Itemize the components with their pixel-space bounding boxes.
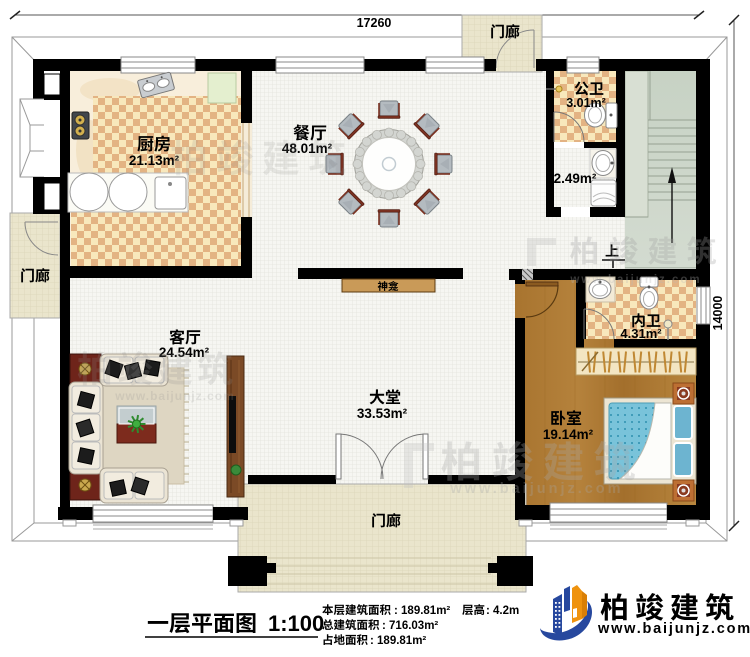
svg-text:www.baijunjz.com: www.baijunjz.com <box>449 481 623 497</box>
svg-text:3.01m²: 3.01m² <box>566 96 606 110</box>
svg-text:19.14m²: 19.14m² <box>543 427 594 442</box>
svg-text:: 4.2m: : 4.2m <box>486 605 519 617</box>
svg-text:www.baijunjz.com: www.baijunjz.com <box>597 621 750 637</box>
svg-text:1:100: 1:100 <box>268 611 324 636</box>
svg-text:17260: 17260 <box>357 16 392 30</box>
svg-text:: 189.81m²: : 189.81m² <box>394 605 450 617</box>
svg-text:2.49m²: 2.49m² <box>554 171 597 186</box>
svg-text:4.31m²: 4.31m² <box>620 326 662 341</box>
svg-text:www.baijunjz.com: www.baijunjz.com <box>114 389 235 403</box>
svg-text:: 189.81m²: : 189.81m² <box>370 635 426 647</box>
svg-text:www.baijunjz.com: www.baijunjz.com <box>569 274 701 286</box>
svg-text:: 716.03m²: : 716.03m² <box>382 620 438 632</box>
svg-text:14000: 14000 <box>711 296 725 331</box>
svg-text:33.53m²: 33.53m² <box>357 406 408 421</box>
